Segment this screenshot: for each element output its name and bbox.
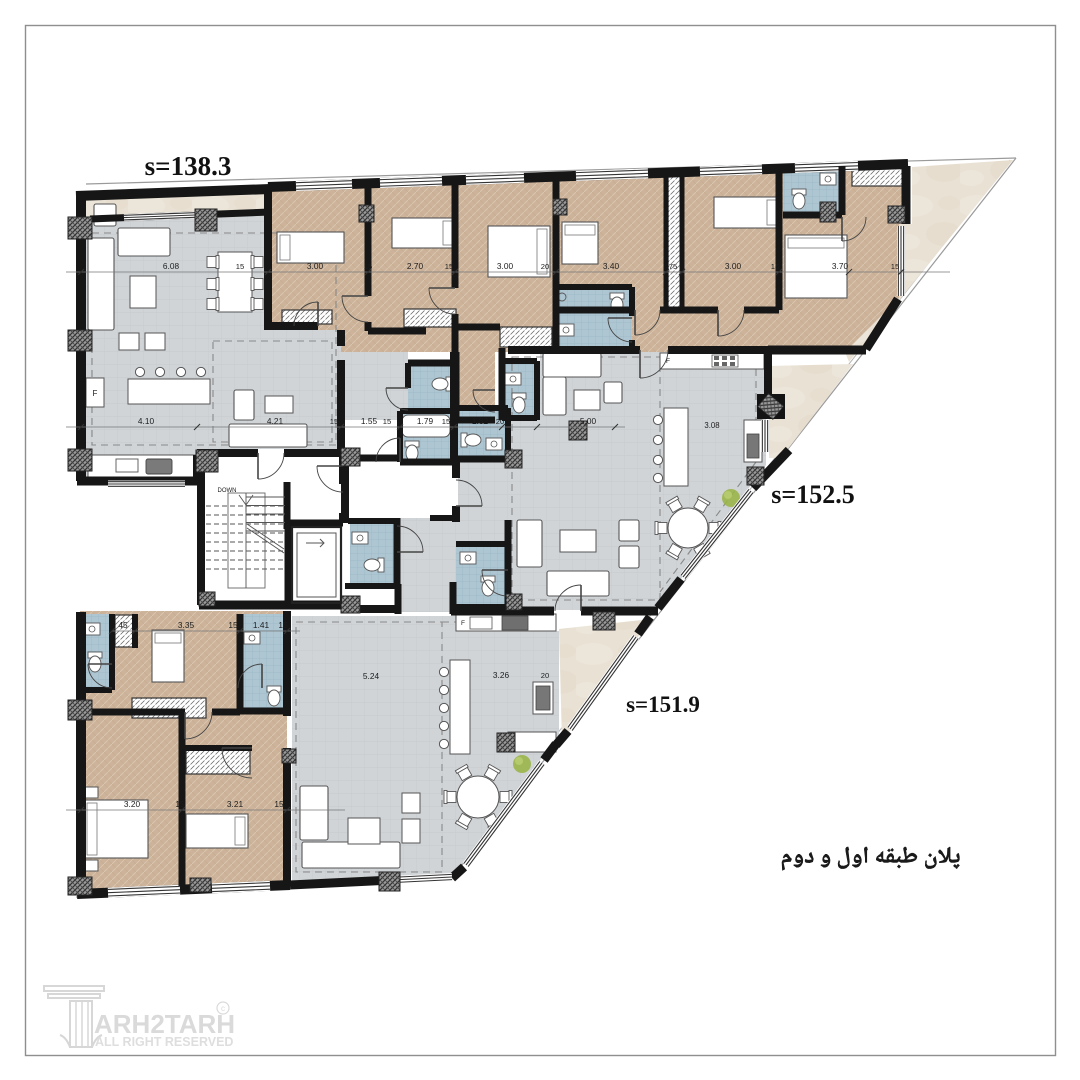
svg-text:20: 20	[496, 417, 504, 426]
svg-text:3.00: 3.00	[725, 261, 742, 271]
svg-text:20: 20	[541, 262, 549, 271]
svg-text:15: 15	[236, 262, 244, 271]
svg-text:c: c	[221, 1004, 225, 1013]
svg-text:1.55: 1.55	[361, 416, 378, 426]
svg-text:DOWN: DOWN	[218, 488, 237, 494]
svg-text:15: 15	[383, 417, 391, 426]
svg-text:1.82: 1.82	[472, 416, 489, 426]
svg-text:15: 15	[442, 417, 450, 426]
svg-text:4.10: 4.10	[138, 416, 155, 426]
svg-text:15: 15	[891, 262, 899, 271]
svg-text:15: 15	[228, 620, 238, 630]
svg-text:6.08: 6.08	[163, 261, 180, 271]
svg-text:45: 45	[118, 620, 128, 630]
svg-text:3.08: 3.08	[704, 421, 719, 430]
svg-text:1.79: 1.79	[417, 416, 434, 426]
svg-text:3.26: 3.26	[493, 670, 510, 680]
svg-text:ALL RIGHT RESERVED: ALL RIGHT RESERVED	[95, 1035, 233, 1049]
svg-text:F: F	[93, 389, 98, 398]
svg-text:1.41: 1.41	[253, 620, 270, 630]
svg-text:15: 15	[771, 262, 779, 271]
svg-text:4.21: 4.21	[267, 416, 284, 426]
svg-text:5.00: 5.00	[580, 416, 597, 426]
svg-text:3.00: 3.00	[497, 261, 514, 271]
svg-text:5.24: 5.24	[363, 671, 380, 681]
svg-text:3.35: 3.35	[178, 620, 195, 630]
svg-text:15: 15	[278, 620, 288, 630]
svg-text:F: F	[461, 620, 465, 627]
svg-text:3.21: 3.21	[227, 799, 244, 809]
svg-text:75: 75	[669, 262, 677, 271]
svg-text:2.70: 2.70	[407, 261, 424, 271]
svg-text:3.40: 3.40	[603, 261, 620, 271]
svg-text:15: 15	[330, 417, 338, 426]
svg-text:s=138.3: s=138.3	[145, 151, 232, 181]
svg-text:s=152.5: s=152.5	[771, 480, 854, 509]
svg-text:3.20: 3.20	[124, 799, 141, 809]
svg-text:3.70: 3.70	[832, 261, 849, 271]
svg-text:15: 15	[445, 262, 453, 271]
svg-text:20: 20	[541, 671, 549, 680]
svg-text:3.00: 3.00	[307, 261, 324, 271]
svg-text:15: 15	[274, 799, 284, 809]
svg-text:15: 15	[175, 799, 185, 809]
svg-text:s=151.9: s=151.9	[626, 692, 700, 717]
